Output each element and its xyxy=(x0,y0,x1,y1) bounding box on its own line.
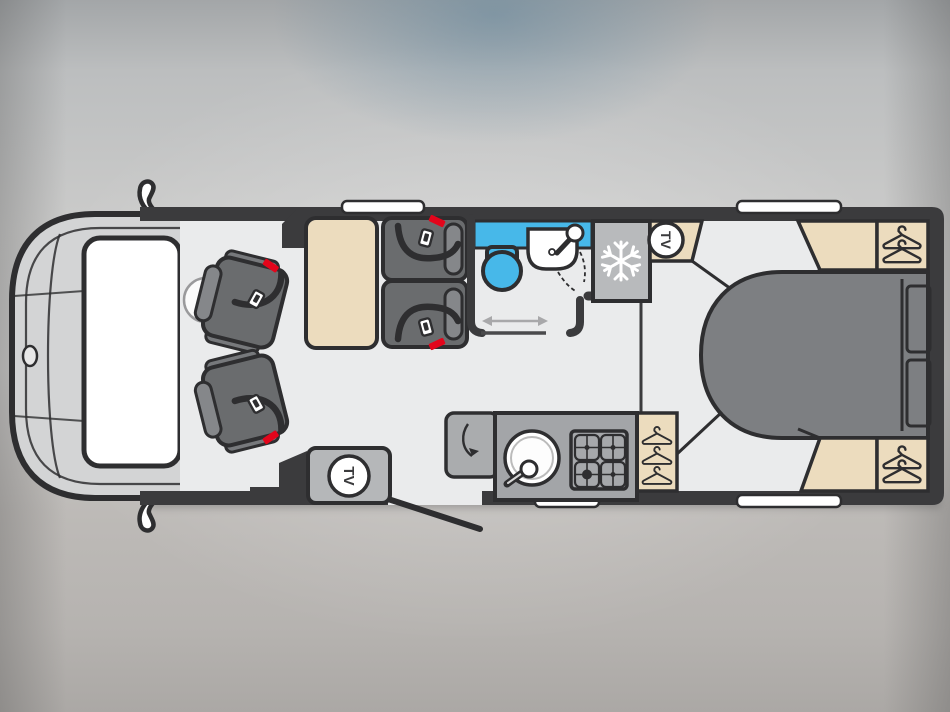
windscreen xyxy=(84,238,180,466)
tap-base xyxy=(521,461,537,477)
travel-seat-bottom xyxy=(383,281,467,351)
motorhome-floorplan: TV TV xyxy=(0,0,950,712)
seatbelt-buckle-icon xyxy=(419,229,434,247)
toilet-bowl xyxy=(483,252,521,290)
worktop-flap xyxy=(446,413,498,477)
window-front-lounge xyxy=(342,201,424,213)
island-bed xyxy=(701,272,928,438)
wardrobe-kitchen-end xyxy=(637,413,677,491)
window-bedroom-top xyxy=(737,201,841,213)
shower-head xyxy=(567,225,583,241)
tv-badge-label: TV xyxy=(658,231,674,250)
floorplan-stage: TV TV xyxy=(0,0,950,712)
tv-badge-bedroom: TV xyxy=(649,223,683,257)
window-bedroom-bottom xyxy=(737,495,841,507)
tv-badge-label: TV xyxy=(340,466,357,485)
grille-logo xyxy=(23,346,37,366)
seatbelt-buckle-icon xyxy=(419,318,434,336)
dinette-table xyxy=(306,218,377,348)
travel-seat-top xyxy=(383,214,467,280)
tv-badge-door: TV xyxy=(329,456,369,496)
